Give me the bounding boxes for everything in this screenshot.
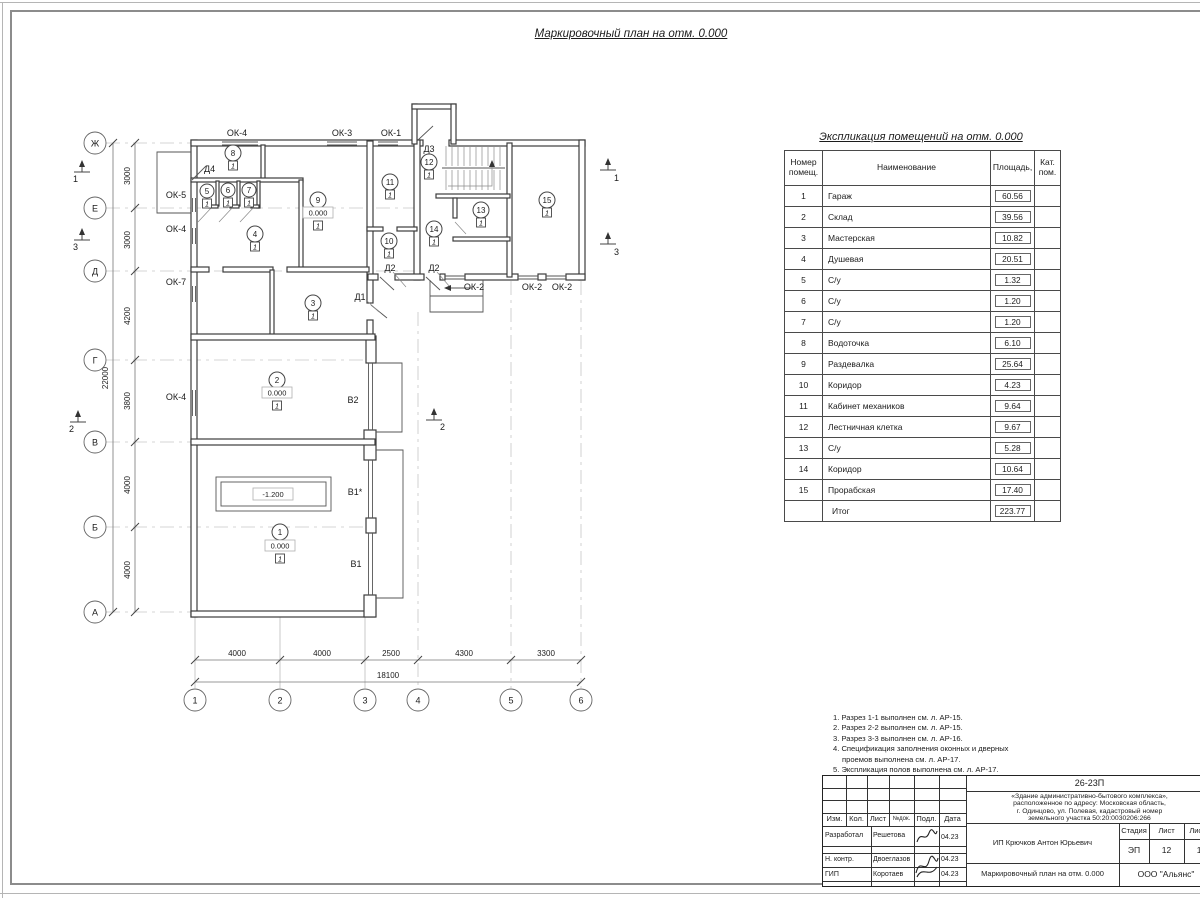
dim-left-3: 3800 xyxy=(123,392,132,410)
table-row: 2Склад39.56 xyxy=(785,207,1061,228)
room-12: 12 xyxy=(425,158,434,167)
stamp-name-2: Коротаев xyxy=(873,871,914,879)
room-11: 11 xyxy=(386,178,395,187)
room-2: 2 xyxy=(275,376,280,385)
window-label-ok2-a: ОК-2 xyxy=(464,282,484,292)
axis-bubbles: Ж Е Д Г В Б А 1 2 3 4 5 6 xyxy=(84,132,592,711)
stamp-name-1: Двоеглазов xyxy=(873,856,914,864)
table-row: 9Раздевалка25.64 xyxy=(785,354,1061,375)
section-2-right: 2 xyxy=(440,422,445,432)
stamp-col-kol: Кол. xyxy=(846,813,867,826)
stamp-role-0: Разработал xyxy=(825,832,871,840)
dim-left-1: 3000 xyxy=(123,231,132,249)
sheet-edge-bottom xyxy=(0,893,1200,894)
note-line: 5. Экспликация полов выполнена см. л. АР… xyxy=(833,765,1008,775)
window-label-ok4-left1: ОК-4 xyxy=(166,224,186,234)
table-row: 4Душевая20.51 xyxy=(785,249,1061,270)
window-label-ok7: ОК-7 xyxy=(166,277,186,287)
stamp-name-0: Решетова xyxy=(873,832,914,840)
gate-label-v1s: В1* xyxy=(348,487,363,497)
frame-left xyxy=(10,10,12,885)
table-row: 14Коридор10.64 xyxy=(785,459,1061,480)
note-line: проемов выполнена см. л. АР-17. xyxy=(833,755,1008,765)
porches xyxy=(157,152,483,598)
axis-row-2: Д xyxy=(92,267,98,277)
dim-bottom-1: 4000 xyxy=(313,649,331,658)
note-line: 2. Разрез 2-2 выполнен см. л. АР-15. xyxy=(833,723,1008,733)
section-2-left: 2 xyxy=(69,424,74,434)
door-label-d4: Д4 xyxy=(204,164,215,174)
axis-row-5: Б xyxy=(92,523,98,533)
explication-title: Экспликация помещений на отм. 0.000 xyxy=(819,131,1022,143)
table-row: 12Лестничная клетка9.67 xyxy=(785,417,1061,438)
room-1: 1 xyxy=(278,528,283,537)
stamp-customer: ИП Крючков Антон Юрьевич xyxy=(966,823,1119,863)
dim-bottom-0: 4000 xyxy=(228,649,246,658)
dim-left-4: 4000 xyxy=(123,476,132,494)
svg-text:1: 1 xyxy=(388,191,392,200)
room-8: 8 xyxy=(231,149,236,158)
section-3-right: 3 xyxy=(614,247,619,257)
dimension-lines xyxy=(109,139,585,686)
stamp-role-1: Н. контр. xyxy=(825,856,871,864)
table-row: 10Коридор4.23 xyxy=(785,375,1061,396)
table-row: 7С/у1.20 xyxy=(785,312,1061,333)
window-label-ok4-left2: ОК-4 xyxy=(166,392,186,402)
door-label-d3: Д3 xyxy=(423,144,434,154)
gate-labels: В2 В1* В1 xyxy=(347,395,362,569)
table-row: 3Мастерская10.82 xyxy=(785,228,1061,249)
stamp-sheets: 17 xyxy=(1184,839,1200,863)
stamp-date-0: 04.23 xyxy=(941,834,966,842)
door-label-d2-a: Д2 xyxy=(384,263,395,273)
table-row: 15Прорабская17.40 xyxy=(785,480,1061,501)
axis-row-6: А xyxy=(92,608,98,618)
svg-text:0.000: 0.000 xyxy=(271,542,290,551)
room-5: 5 xyxy=(205,187,210,196)
stamp-company: ООО "Альянс" xyxy=(1119,863,1200,886)
axis-row-1: Е xyxy=(92,204,98,214)
axis-col-4: 5 xyxy=(508,696,513,706)
table-row: 8Водоточка6.10 xyxy=(785,333,1061,354)
note-line: 3. Разрез 3-3 выполнен см. л. АР-16. xyxy=(833,734,1008,744)
staircase xyxy=(442,146,505,190)
note-line: 4. Спецификация заполнения оконных и две… xyxy=(833,744,1008,754)
window-label-ok2-c: ОК-2 xyxy=(552,282,572,292)
table-row: 6С/у1.20 xyxy=(785,291,1061,312)
table-row: 1Гараж60.56 xyxy=(785,186,1061,207)
stamp-date-2: 04.23 xyxy=(941,871,966,879)
table-row: 11Кабинет механиков9.64 xyxy=(785,396,1061,417)
axis-col-2: 3 xyxy=(362,696,367,706)
svg-text:1: 1 xyxy=(278,555,282,564)
axis-row-4: В xyxy=(92,438,98,448)
signature xyxy=(915,828,939,845)
explication-table: Номерпомещ. Наименование Площадь, Кат.по… xyxy=(784,150,1061,522)
svg-text:1: 1 xyxy=(247,199,251,208)
svg-text:1: 1 xyxy=(253,243,257,252)
stamp-project: «Здание административно-бытового комплек… xyxy=(966,793,1200,823)
svg-text:0.000: 0.000 xyxy=(268,389,287,398)
stamp-stage-label: Стадия xyxy=(1119,823,1149,839)
dimension-texts: 3000 3000 4200 3800 4000 4000 22000 4000… xyxy=(101,167,555,680)
room-15: 15 xyxy=(543,196,552,205)
svg-text:1: 1 xyxy=(231,162,235,171)
section-1-right: 1 xyxy=(614,173,619,183)
signature xyxy=(913,853,940,880)
svg-text:1: 1 xyxy=(316,222,320,231)
stamp-sheets-label: Листов xyxy=(1184,823,1200,839)
svg-text:1: 1 xyxy=(275,402,279,411)
door-label-d2-b: Д2 xyxy=(428,263,439,273)
dim-bottom-2: 2500 xyxy=(382,649,400,658)
svg-text:1: 1 xyxy=(427,171,431,180)
stamp-code: 26-23П xyxy=(966,776,1200,791)
table-header-row: Номерпомещ. Наименование Площадь, Кат.по… xyxy=(785,151,1061,186)
room-9: 9 xyxy=(316,196,321,205)
axis-col-0: 1 xyxy=(192,696,197,706)
stamp-date-1: 04.23 xyxy=(941,856,966,864)
axis-col-3: 4 xyxy=(415,696,420,706)
room-13: 13 xyxy=(477,206,486,215)
room-7: 7 xyxy=(247,186,252,195)
dim-left-0: 3000 xyxy=(123,167,132,185)
window-label-ok4-top: ОК-4 xyxy=(227,128,247,138)
svg-text:0.000: 0.000 xyxy=(309,209,328,218)
room-10: 10 xyxy=(385,237,394,246)
svg-text:1: 1 xyxy=(479,219,483,228)
stamp-col-izm: Изм. xyxy=(823,813,846,826)
stamp-sheet-label: Лист xyxy=(1149,823,1184,839)
table-total-row: Итог223.77 xyxy=(785,501,1061,522)
dim-bottom-4: 3300 xyxy=(537,649,555,658)
sheet-edge-left xyxy=(2,2,3,898)
stamp-sheet: 12 xyxy=(1149,839,1184,863)
table-row: 5С/у1.32 xyxy=(785,270,1061,291)
stamp-col-data: Дата xyxy=(939,813,966,826)
stamp-doc-title: Маркировочный план на отм. 0.000 xyxy=(966,863,1119,886)
notes: 1. Разрез 1-1 выполнен см. л. АР-15. 2. … xyxy=(833,713,1008,775)
gate-label-v1: В1 xyxy=(350,559,361,569)
dim-left-total: 22000 xyxy=(101,366,110,389)
dim-bottom-3: 4300 xyxy=(455,649,473,658)
stamp-col-ndok: №док. xyxy=(889,813,914,826)
stamp-stage: ЭП xyxy=(1119,839,1149,863)
frame-top xyxy=(10,10,1200,12)
axis-row-0: Ж xyxy=(91,139,100,149)
svg-text:1: 1 xyxy=(387,250,391,259)
stamp-role-2: ГИП xyxy=(825,871,871,879)
door-label-d1: Д1 xyxy=(354,292,365,302)
room-4: 4 xyxy=(253,230,258,239)
axis-col-1: 2 xyxy=(277,696,282,706)
section-3-left: 3 xyxy=(73,242,78,252)
dim-left-5: 4000 xyxy=(123,561,132,579)
svg-text:1: 1 xyxy=(311,312,315,321)
window-label-ok1: ОК-1 xyxy=(381,128,401,138)
title-block: Изм. Кол. Лист №док. Подл. Дата Разработ… xyxy=(822,775,1200,887)
room-6: 6 xyxy=(226,186,231,195)
room-14: 14 xyxy=(430,225,439,234)
svg-text:1: 1 xyxy=(432,238,436,247)
drawing-sheet: { "sheet": { "main_title": "Маркировочны… xyxy=(0,0,1200,900)
window-label-ok2-b: ОК-2 xyxy=(522,282,542,292)
note-line: 1. Разрез 1-1 выполнен см. л. АР-15. xyxy=(833,713,1008,723)
svg-text:1: 1 xyxy=(226,199,230,208)
dim-left-2: 4200 xyxy=(123,307,132,325)
table-row: 13С/у5.28 xyxy=(785,438,1061,459)
gates xyxy=(369,363,373,595)
room-3: 3 xyxy=(311,299,316,308)
inspection-pit: -1.200 xyxy=(216,477,331,511)
stamp-col-podp: Подл. xyxy=(914,813,939,826)
gate-label-v2: В2 xyxy=(347,395,358,405)
page-title: Маркировочный план на отм. 0.000 xyxy=(535,28,728,40)
pit-level: -1.200 xyxy=(262,490,283,499)
axis-col-5: 6 xyxy=(578,696,583,706)
stamp-col-list: Лист xyxy=(867,813,889,826)
svg-text:1: 1 xyxy=(545,209,549,218)
axis-row-3: Г xyxy=(93,356,98,366)
window-label-ok5: ОК-5 xyxy=(166,190,186,200)
dim-bottom-total: 18100 xyxy=(377,671,400,680)
svg-text:1: 1 xyxy=(205,200,209,209)
sheet-edge-top xyxy=(0,2,1200,3)
floor-plan: 3000 3000 4200 3800 4000 4000 22000 4000… xyxy=(50,85,790,725)
section-marks: 1 1 3 3 2 2 xyxy=(69,158,619,434)
window-label-ok3: ОК-3 xyxy=(332,128,352,138)
section-1-left: 1 xyxy=(73,174,78,184)
